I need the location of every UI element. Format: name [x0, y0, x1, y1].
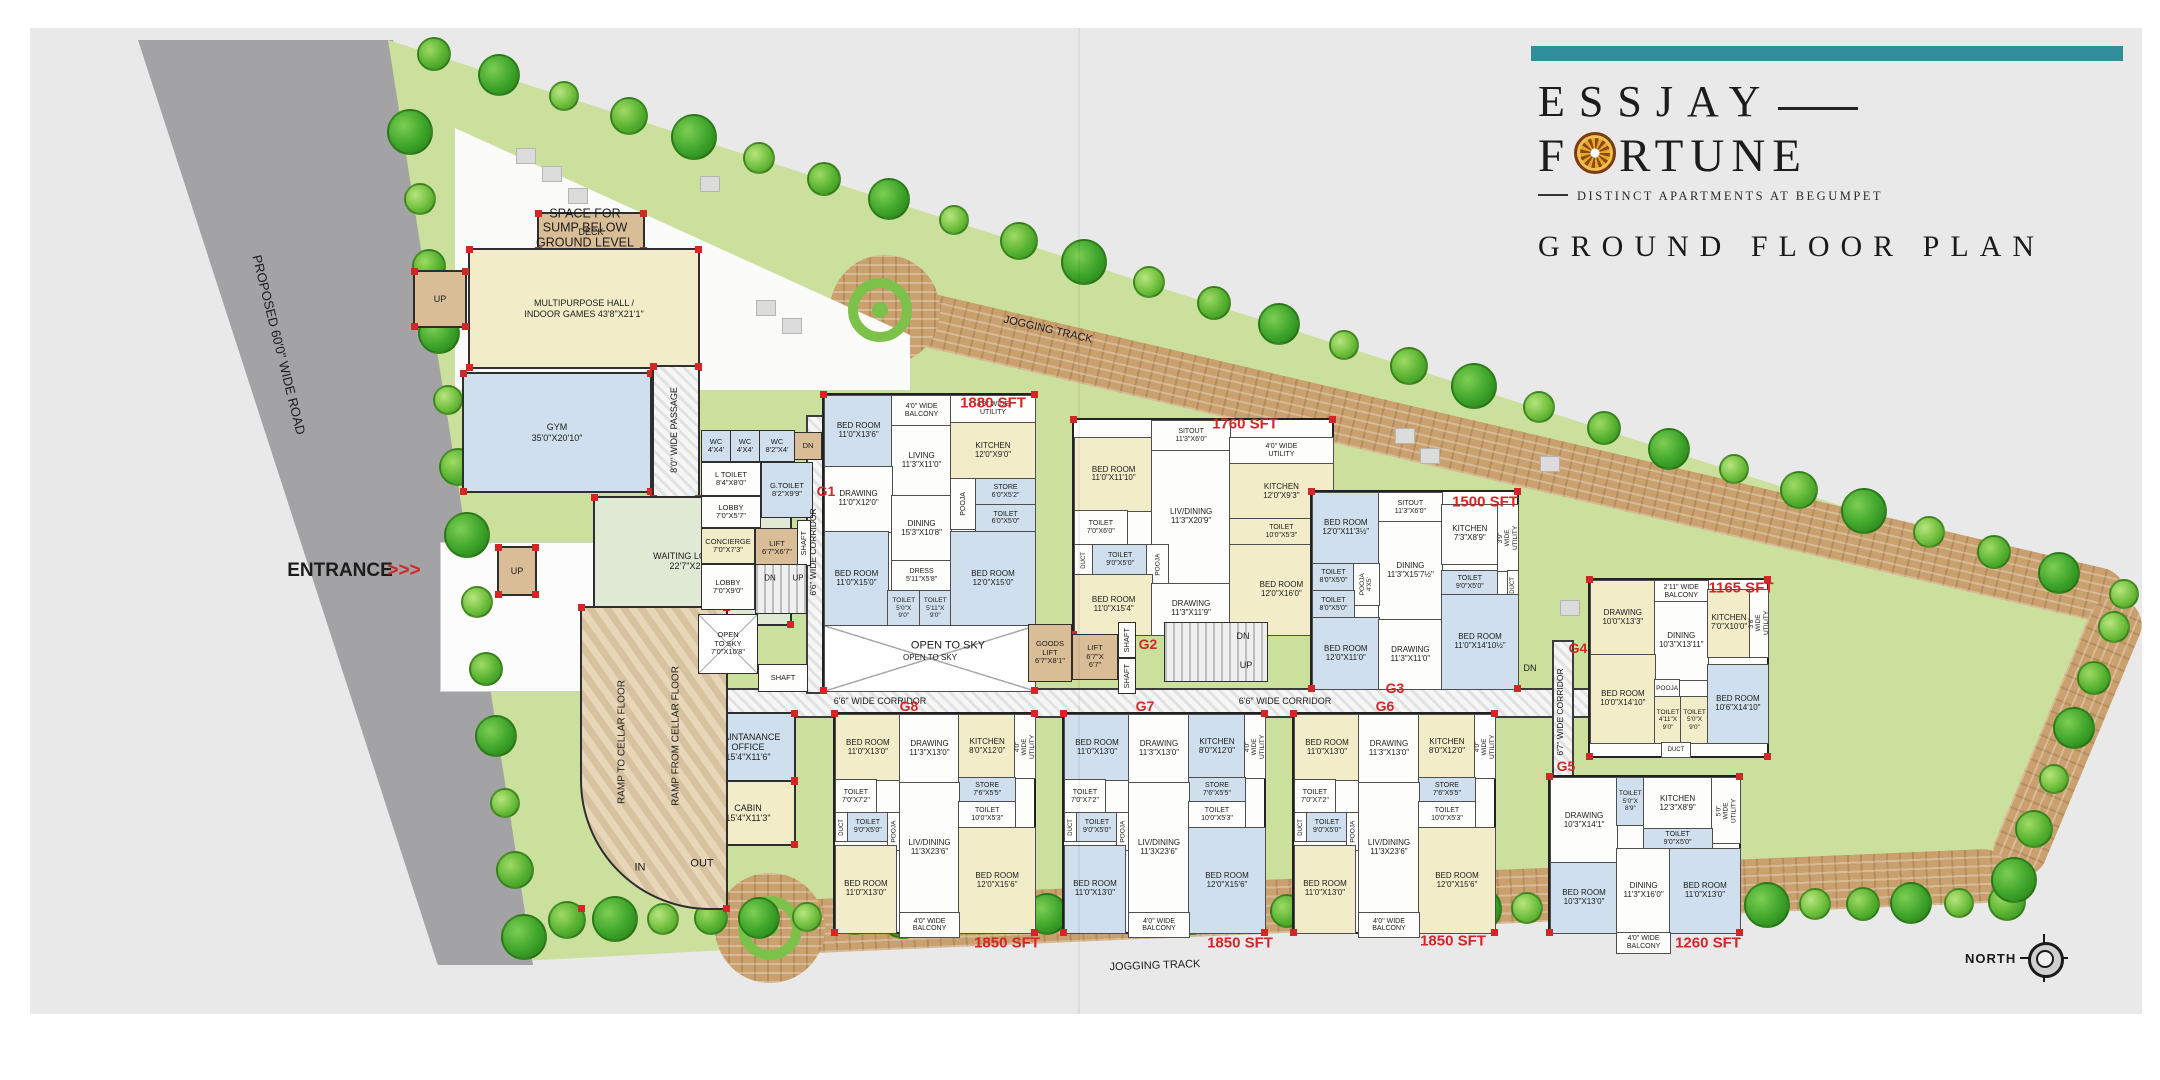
core-room: DN: [794, 432, 822, 460]
wall-opening-mark: [831, 929, 838, 936]
room: DRAWING 10'0"X13'3": [1590, 580, 1656, 656]
room-label: SITOUT 11'3"X6'0": [1395, 500, 1426, 516]
room-label: 4'0" WIDE UTILITY: [1474, 735, 1496, 759]
room-label: TOILET 5'0"X 9'0": [1683, 709, 1706, 731]
wall-opening-mark: [1031, 687, 1038, 694]
unit-G4: DRAWING 10'0"X13'3"2'11" WIDE BALCONYDIN…: [1588, 578, 1769, 758]
wall-opening-mark: [411, 323, 418, 330]
room: 4'0" WIDE BALCONY: [1358, 912, 1420, 938]
room-label: 4'0" WIDE UTILITY: [1244, 735, 1266, 759]
tree-icon: [2039, 764, 2069, 794]
room-label: MULTIPURPOSE HALL / INDOOR GAMES 43'8"X2…: [524, 298, 643, 318]
wall-opening-mark: [1514, 685, 1521, 692]
tree-icon: [1061, 239, 1107, 285]
unit-area-G7: 1850 SFT: [1207, 934, 1273, 951]
room-label: KITCHEN 8'0"X12'0": [1429, 738, 1465, 756]
unit-G3: BED ROOM 12'0"X11'3½"SITOUT 11'3"X6'0"DI…: [1310, 490, 1519, 690]
room: STORE 6'0"X5'2": [975, 478, 1036, 507]
room-label: DRESS 5'11"X5'8": [906, 568, 937, 584]
core-room: WC 4'X4': [701, 430, 731, 462]
room-label: 4'0" WIDE UTILITY: [1265, 443, 1297, 459]
wall-opening-mark: [411, 268, 418, 275]
ramp-label: RAMP TO CELLAR FLOOR: [616, 680, 628, 804]
room: BED ROOM 11'0"X13'0": [1669, 848, 1741, 934]
paver: [542, 166, 562, 182]
core-room: G.TOILET 8'2"X9'9": [761, 462, 813, 518]
wall-opening-mark: [495, 544, 502, 551]
core-room: [1164, 622, 1268, 682]
room-label: SHAFT: [1123, 664, 1131, 689]
open-to-sky-label: OPEN TO SKY: [911, 640, 985, 653]
room-label: BED ROOM 12'0"X11'3½": [1322, 519, 1369, 537]
room-label: BED ROOM 10'6"X14'10": [1715, 695, 1760, 713]
room-label: BED ROOM 11'0"X11'10": [1092, 466, 1136, 484]
paver: [756, 300, 776, 316]
room: POOJA 4'X5': [1353, 563, 1380, 606]
room-label: BED ROOM 11'0"X13'0": [844, 880, 888, 898]
tree-icon: [1329, 330, 1359, 360]
unit-area-G4: 1165 SFT: [1708, 579, 1773, 596]
unit-id-G4: G4: [1569, 640, 1588, 656]
up-ramp: UP: [413, 270, 467, 328]
unit-id-G2: G2: [1139, 636, 1158, 652]
wall-opening-mark: [1060, 710, 1067, 717]
room: BED ROOM 12'0"X15'6": [1188, 827, 1266, 934]
wall-opening-mark: [1546, 773, 1553, 780]
room: TOILET 5'11"X 9'0": [919, 590, 953, 627]
room-label: SHAFT: [771, 674, 796, 682]
wall-opening-mark: [460, 370, 467, 377]
room: TOILET 8'0"X5'0": [1312, 590, 1355, 619]
room-label: 4'0" WIDE BALCONY: [1627, 935, 1660, 951]
tree-icon: [475, 715, 517, 757]
unit-id-G5: G5: [1557, 758, 1576, 774]
tree-icon: [807, 162, 841, 196]
room: KITCHEN 12'0"X9'0": [950, 422, 1036, 480]
room: BED ROOM 12'0"X15'6": [1418, 827, 1496, 934]
tree-icon: [1511, 892, 1543, 924]
room: TOILET 4'11"X 9'0": [1654, 696, 1683, 744]
room-label: KITCHEN 12'0"X9'0": [975, 442, 1011, 460]
room-label: WC 4'X4': [708, 438, 724, 455]
wall-opening-mark: [650, 363, 657, 370]
paver: [700, 176, 720, 192]
wall-opening-mark: [532, 544, 539, 551]
room-label: BED ROOM 12'0"X11'0": [1324, 645, 1368, 663]
room: TOILET 9'0"X5'0": [1306, 812, 1348, 842]
unit-G8: BED ROOM 11'0"X13'0"DRAWING 11'3"X13'0"K…: [833, 712, 1036, 934]
room: KITCHEN 8'0"X12'0": [1188, 714, 1246, 779]
room-label: 4'0" WIDE BALCONY: [905, 403, 938, 419]
tree-icon: [1197, 286, 1231, 320]
wall-opening-mark: [462, 323, 469, 330]
wall-opening-mark: [1491, 929, 1498, 936]
tree-icon: [496, 851, 534, 889]
room: TOILET 8'0"X5'0": [1312, 563, 1355, 592]
tree-icon: [2038, 552, 2080, 594]
room: KITCHEN 8'0"X12'0": [1418, 714, 1476, 779]
tree-icon: [1890, 882, 1932, 924]
room-label: WC 4'X4': [737, 438, 753, 455]
tree-icon: [2077, 661, 2111, 695]
room: BED ROOM 11'0"X13'0": [1064, 714, 1130, 781]
room-label: DUCT: [1081, 552, 1088, 569]
wall-opening-mark: [1060, 929, 1067, 936]
room-label: BED ROOM 11'0"X15'4": [1092, 596, 1136, 614]
gym: GYM 35'0"X20'10": [462, 372, 652, 493]
room-label: BED ROOM 11'0"X13'0": [1075, 739, 1119, 757]
room-label: DUCT: [1298, 819, 1305, 836]
room: BED ROOM 11'0"X13'0": [1294, 714, 1360, 781]
wall-opening-mark: [791, 778, 798, 785]
entrance-arrows: >>>: [387, 560, 420, 582]
room-label: POOJA: [1656, 685, 1678, 692]
room-label: TOILET 9'0"X5'0": [1106, 552, 1134, 568]
room-label: BED ROOM 12'0"X15'6": [1205, 872, 1249, 890]
room: KITCHEN 7'3"X8'9": [1441, 504, 1498, 565]
wall-opening-mark: [791, 841, 798, 848]
room: TOILET 5'0"X 9'0": [1680, 696, 1709, 744]
room: 4'0" WIDE BALCONY: [891, 395, 952, 427]
tree-icon: [939, 205, 969, 235]
room-label: DINING 15'3"X10'8": [901, 520, 942, 538]
room-label: LIV/DINING 11'3X23'6": [1368, 839, 1410, 857]
paver: [516, 148, 536, 164]
unit-area-G3: 1500 SFT: [1452, 493, 1518, 510]
room-label: DRAWING 10'3"X14'1": [1564, 812, 1605, 830]
room: DUCT: [1074, 544, 1094, 576]
room: 4'0" WIDE BALCONY: [1128, 912, 1190, 938]
wall-opening-mark: [532, 591, 539, 598]
room-label: TOILET 8'0"X5'0": [1320, 597, 1348, 613]
core-room: WC 4'X4': [730, 430, 760, 462]
room-label: 5'0" WIDE UTILITY: [1715, 796, 1737, 824]
room: 5'0" WIDE UTILITY: [1711, 777, 1741, 844]
room: DUCT: [1661, 742, 1691, 758]
sheet-margin-right: [2142, 0, 2160, 1080]
room: LIV/DINING 11'3X23'6": [1358, 782, 1420, 915]
room: BED ROOM 11'0"X15'0": [824, 531, 889, 627]
wall-opening-mark: [820, 391, 827, 398]
unit-area-G6: 1850 SFT: [1420, 932, 1486, 949]
wall-opening-mark: [578, 604, 585, 611]
tree-icon: [1648, 428, 1690, 470]
tree-icon: [671, 114, 717, 160]
tree-icon: [2098, 611, 2130, 643]
room-label: LIFT 6'7"X 6'7": [1086, 644, 1103, 669]
room: DINING 15'3"X10'8": [891, 495, 952, 562]
room: KITCHEN 8'0"X12'0": [958, 714, 1016, 779]
core-room: SHAFT: [758, 664, 808, 692]
tree-icon: [647, 903, 679, 935]
room-label: POOJA: [1349, 821, 1356, 843]
room-label: POOJA: [1154, 553, 1161, 575]
room: BED ROOM 10'0"X14'10": [1590, 654, 1656, 744]
tree-icon: [1390, 347, 1428, 385]
room-label: TOILET 7'0"X7'2": [1301, 789, 1329, 805]
room-label: CONCIERGE 7'0"X7'3": [705, 538, 750, 555]
paver: [1395, 428, 1415, 444]
room-label: 3'6" WIDE UTILITY: [1748, 611, 1770, 635]
room-label: OPEN TO SKY 7'0"X10'8": [711, 631, 745, 656]
room-label: GYM 35'0"X20'10": [532, 422, 583, 442]
room-label: BED ROOM 11'0"X13'0": [1305, 739, 1349, 757]
room: BED ROOM 11'0"X11'10": [1074, 437, 1153, 512]
room-label: TOILET 9'0"X5'0": [1083, 819, 1111, 835]
wall-opening-mark: [1070, 416, 1077, 423]
brand-fortune: FRTUNE: [1538, 129, 2138, 183]
unit-id-G3: G3: [1386, 680, 1405, 696]
core-room: WC 8'2"X4': [759, 430, 795, 462]
unit-G5: DRAWING 10'3"X14'1"TOILET 5'0"X 8'9"KITC…: [1548, 775, 1741, 934]
room: BED ROOM 11'0"X14'10½": [1441, 594, 1519, 690]
core-room: OPEN TO SKY 7'0"X10'8": [698, 614, 758, 674]
room: DINING 10'3"X13'11": [1654, 601, 1709, 680]
room-label: KITCHEN 8'0"X12'0": [969, 738, 1005, 756]
stair-dn-label: DN: [1524, 663, 1537, 673]
room-label: SITOUT 11'3"X6'0": [1175, 428, 1206, 444]
corridor-label: 6'7" WIDE CORRIDOR: [1556, 668, 1566, 755]
core-room: [755, 564, 807, 614]
wall-opening-mark: [723, 905, 730, 912]
wall-opening-mark: [591, 494, 598, 501]
room: BED ROOM 10'6"X14'10": [1707, 664, 1769, 743]
tree-icon: [1744, 882, 1790, 928]
room-label: BED ROOM 10'3"X13'0": [1562, 889, 1606, 907]
room-label: DUCT: [1510, 577, 1517, 594]
tree-icon: [1944, 888, 1974, 918]
room-label: BED ROOM 12'0"X15'0": [971, 570, 1015, 588]
tree-icon: [478, 54, 520, 96]
room: KITCHEN 7'0"X10'0": [1707, 589, 1751, 658]
unit-id-G1: G1: [817, 483, 836, 499]
wall-opening-mark: [1308, 488, 1315, 495]
wall-opening-mark: [1491, 710, 1498, 717]
tree-icon: [501, 914, 547, 960]
wall-opening-mark: [1261, 710, 1268, 717]
unit-area-G1: 1880 SFT: [960, 394, 1026, 411]
room-label: WC 8'2"X4': [765, 438, 788, 455]
room-label: STORE 6'0"X5'2": [992, 484, 1020, 500]
room-label: LIV/DINING 11'3X23'6": [1138, 839, 1180, 857]
wall-opening-mark: [1290, 710, 1297, 717]
room: STORE 7'6"X5'5": [958, 777, 1016, 803]
multipurpose-hall: MULTIPURPOSE HALL / INDOOR GAMES 43'8"X2…: [468, 248, 700, 369]
room: POOJA: [950, 478, 977, 530]
room-label: UP: [434, 294, 447, 304]
tree-icon: [2109, 579, 2139, 609]
room: 3'6" WIDE UTILITY: [1749, 589, 1769, 658]
wall-opening-mark: [1586, 576, 1593, 583]
core-room: LOBBY 7'0"X9'0": [701, 564, 755, 610]
wall-opening-mark: [460, 488, 467, 495]
core-room: GOODS LIFT 6'7"X8'1": [1028, 624, 1072, 682]
tree-icon: [387, 109, 433, 155]
room: LIVING 11'3"X11'0": [891, 425, 952, 498]
room-label: TOILET 7'0"X7'2": [842, 789, 870, 805]
accent-bar: [1531, 46, 2123, 61]
room-label: TOILET 8'0"X5'0": [1320, 569, 1348, 585]
room: DRESS 5'11"X5'8": [891, 560, 952, 592]
passage-label: 8'0" WIDE PASSAGE: [669, 387, 679, 473]
room-label: 4'0" WIDE BALCONY: [1372, 918, 1405, 934]
room-label: TOILET 10'0"X5'3": [971, 807, 1003, 823]
room-label: CABIN 15'4"X11'3": [725, 803, 770, 823]
room: TOILET 5'0"X 9'0": [887, 590, 921, 627]
room-label: DN: [803, 442, 814, 450]
wall-opening-mark: [820, 687, 827, 694]
wall-opening-mark: [791, 710, 798, 717]
room-label: POOJA 4'X5': [1359, 573, 1374, 595]
room: TOILET 9'0"X5'0": [1441, 570, 1498, 596]
unit-area-G8: 1850 SFT: [974, 934, 1040, 951]
room: TOILET 9'0"X5'0": [1076, 812, 1118, 842]
room-label: L TOILET 8'4"X8'0": [715, 471, 747, 488]
room: LIV/DINING 11'3X23'6": [899, 782, 961, 915]
tree-icon: [1841, 488, 1887, 534]
room: TOILET 9'0"X5'0": [847, 812, 889, 842]
unit-G2: BED ROOM 11'0"X11'10"SITOUT 11'3"X6'0"LI…: [1072, 418, 1334, 636]
north-indicator: NORTH: [1965, 938, 2064, 978]
tree-icon: [1991, 857, 2037, 903]
room: DRAWING 10'3"X14'1": [1550, 777, 1618, 864]
paver: [568, 188, 588, 204]
room-label: KITCHEN 12'3"X8'9": [1659, 795, 1695, 813]
room-label: BED ROOM 11'0"X15'0": [835, 570, 879, 588]
wall-opening-mark: [1308, 685, 1315, 692]
room-label: 2'11" WIDE BALCONY: [1664, 584, 1699, 600]
room-label: LIVING 11'3"X11'0": [902, 452, 942, 470]
room: 4'0" WIDE UTILITY: [1014, 714, 1036, 779]
room-label: DRAWING 11'3"X11'0": [1391, 646, 1431, 664]
unit-id-G6: G6: [1376, 698, 1395, 714]
room-label: TOILET 9'0"X5'0": [1664, 831, 1692, 847]
room-label: KITCHEN 12'0"X9'3": [1263, 483, 1299, 501]
tree-icon: [1780, 471, 1818, 509]
room: TOILET 6'0"X5'0": [975, 504, 1036, 533]
room-label: POOJA: [960, 492, 968, 516]
wall-opening-mark: [462, 268, 469, 275]
room-label: BED ROOM 12'0"X16'0": [1260, 581, 1304, 599]
room-label: BED ROOM 11'0"X13'0": [846, 739, 890, 757]
room: BED ROOM 12'0"X11'0": [1312, 617, 1380, 690]
tree-icon: [738, 897, 780, 939]
room-label: DRAWING 10'0"X13'3": [1602, 609, 1643, 627]
room-label: TOILET 10'0"X5'3": [1266, 524, 1298, 540]
room-label: 4'0" WIDE BALCONY: [1142, 918, 1175, 934]
paver: [1560, 600, 1580, 616]
room-label: TOILET 5'11"X 9'0": [924, 597, 947, 619]
room-label: TOILET 5'0"X 8'9": [1619, 790, 1642, 812]
north-label: NORTH: [1965, 951, 2016, 966]
wall-opening-mark: [578, 905, 585, 912]
room: TOILET 9'0"X5'0": [1643, 828, 1713, 850]
room-label: POOJA: [1119, 821, 1126, 843]
room: 3'9" WIDE UTILITY: [1497, 504, 1520, 573]
room-label: DINING 11'3"X16'0": [1624, 882, 1664, 900]
wall-opening-mark: [695, 246, 702, 253]
room: BED ROOM 12'0"X15'0": [950, 531, 1036, 627]
core-room: LIFT 6'7"X6'7": [755, 528, 799, 568]
core-room: LOBBY 7'0"X5'7": [701, 496, 761, 528]
room: BED ROOM 11'0"X13'0": [835, 714, 901, 781]
page-title: GROUND FLOOR PLAN: [1538, 230, 2138, 264]
room: DRAWING 11'3"X13'0": [1128, 714, 1190, 784]
room: DRAWING 11'3"X13'0": [1358, 714, 1420, 784]
wall-opening-mark: [1736, 773, 1743, 780]
room: DRAWING 11'0"X12'0": [824, 466, 893, 533]
room-label: OPEN TO SKY: [903, 654, 957, 663]
room-label: DUCT: [1668, 747, 1685, 754]
fortune-medallion-icon: [1574, 132, 1616, 174]
room-label: BED ROOM 11'0"X13'6": [837, 422, 881, 440]
tree-icon: [461, 586, 493, 618]
room: BED ROOM 11'0"X13'0": [835, 845, 897, 934]
room-label: GOODS LIFT 6'7"X8'1": [1035, 640, 1065, 665]
corridor-label: 6'6" WIDE CORRIDOR: [1239, 696, 1331, 706]
room-label: LOBBY 7'0"X5'7": [716, 504, 746, 521]
unit-id-G7: G7: [1136, 698, 1155, 714]
paver: [782, 318, 802, 334]
room-label: DRAWING 11'3"X13'0": [1369, 740, 1409, 758]
room: TOILET 7'0"X7'2": [1064, 779, 1106, 814]
paver: [1540, 456, 1560, 472]
room-label: BED ROOM 11'0"X13'0": [1683, 882, 1727, 900]
room-label: TOILET 10'0"X5'3": [1201, 807, 1233, 823]
room-label: G.TOILET 8'2"X9'9": [770, 482, 804, 499]
room: 4'0" WIDE UTILITY: [1474, 714, 1496, 779]
room: BED ROOM 11'0"X13'0": [1064, 845, 1126, 934]
tree-icon: [404, 183, 436, 215]
room: 4'0" WIDE UTILITY: [1244, 714, 1266, 779]
tree-icon: [444, 512, 490, 558]
room-label: TOILET 5'0"X 9'0": [892, 597, 915, 619]
wall-opening-mark: [466, 364, 473, 371]
room-label: SHAFT: [800, 531, 808, 556]
room-label: 4'0" WIDE BALCONY: [913, 918, 946, 934]
corridor-label: 6'6" WIDE CORRIDOR: [809, 508, 819, 595]
core-room: SHAFT: [1118, 658, 1136, 694]
room-label: TOILET 10'0"X5'3": [1431, 807, 1463, 823]
wall-opening-mark: [787, 621, 794, 628]
room: BED ROOM 12'0"X15'6": [958, 827, 1036, 934]
room-label: TOILET 9'0"X5'0": [854, 819, 882, 835]
room-label: LIV/DINING 11'3"X20'9": [1170, 508, 1212, 526]
room: OPEN TO SKY: [824, 625, 1036, 692]
room: BED ROOM 11'0"X15'4": [1074, 574, 1153, 636]
wall-opening-mark: [1546, 929, 1553, 936]
room: BED ROOM 11'0"X13'0": [1294, 845, 1356, 934]
jogging-track-label-bottom: JOGGING TRACK: [1109, 958, 1200, 974]
screenshot-canvas: DECKMULTIPURPOSE HALL / INDOOR GAMES 43'…: [0, 0, 2160, 1080]
room-label: KITCHEN 8'0"X12'0": [1199, 738, 1235, 756]
room: DINING 11'3"X15'7½": [1378, 521, 1444, 621]
stair-dn-label: DN: [764, 573, 776, 582]
wall-opening-mark: [1290, 929, 1297, 936]
room-label: STORE 7'6"X5'5": [1203, 782, 1231, 798]
tree-icon: [549, 81, 579, 111]
room-label: BED ROOM 11'0"X14'10½": [1454, 633, 1505, 651]
room: TOILET 7'0"X7'2": [835, 779, 877, 814]
stair-dn-label: DN: [1237, 631, 1250, 641]
room-label: KITCHEN 7'3"X8'9": [1452, 525, 1487, 543]
room: 4'0" WIDE BALCONY: [899, 912, 961, 938]
tree-icon: [1523, 391, 1555, 423]
room-label: DRAWING 11'3"X13'0": [1139, 740, 1179, 758]
compass-icon: [2024, 938, 2064, 978]
room-label: DINING 10'3"X13'11": [1659, 632, 1704, 650]
room-label: LOBBY 7'0"X9'0": [713, 579, 743, 596]
